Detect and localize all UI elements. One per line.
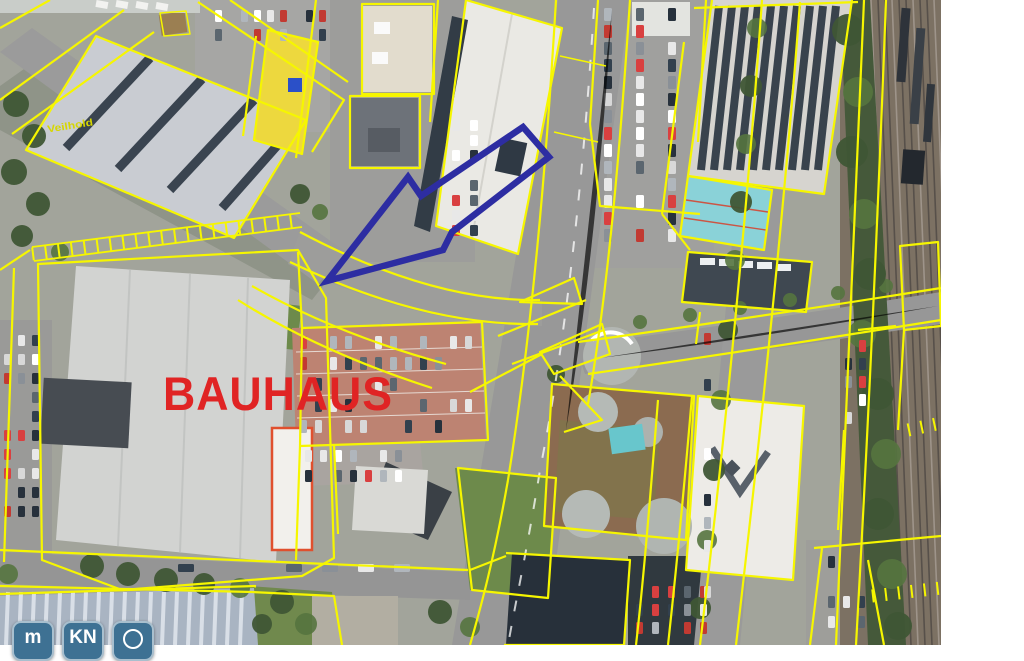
circle-button[interactable] [112,621,154,661]
measure-button[interactable]: m [12,621,54,661]
kn-button[interactable]: KN [62,621,104,661]
photo-edge-whitespace [941,0,1024,645]
store-label: BAUHAUS [163,367,393,420]
circle-icon [123,629,143,649]
kn-icon: KN [69,628,96,647]
measure-icon: m [25,628,42,647]
map-canvas[interactable]: BAUHAUS Veilhold [0,0,1024,645]
building-white-hall-bottomright [686,396,804,580]
building-flat-beige [362,6,432,92]
